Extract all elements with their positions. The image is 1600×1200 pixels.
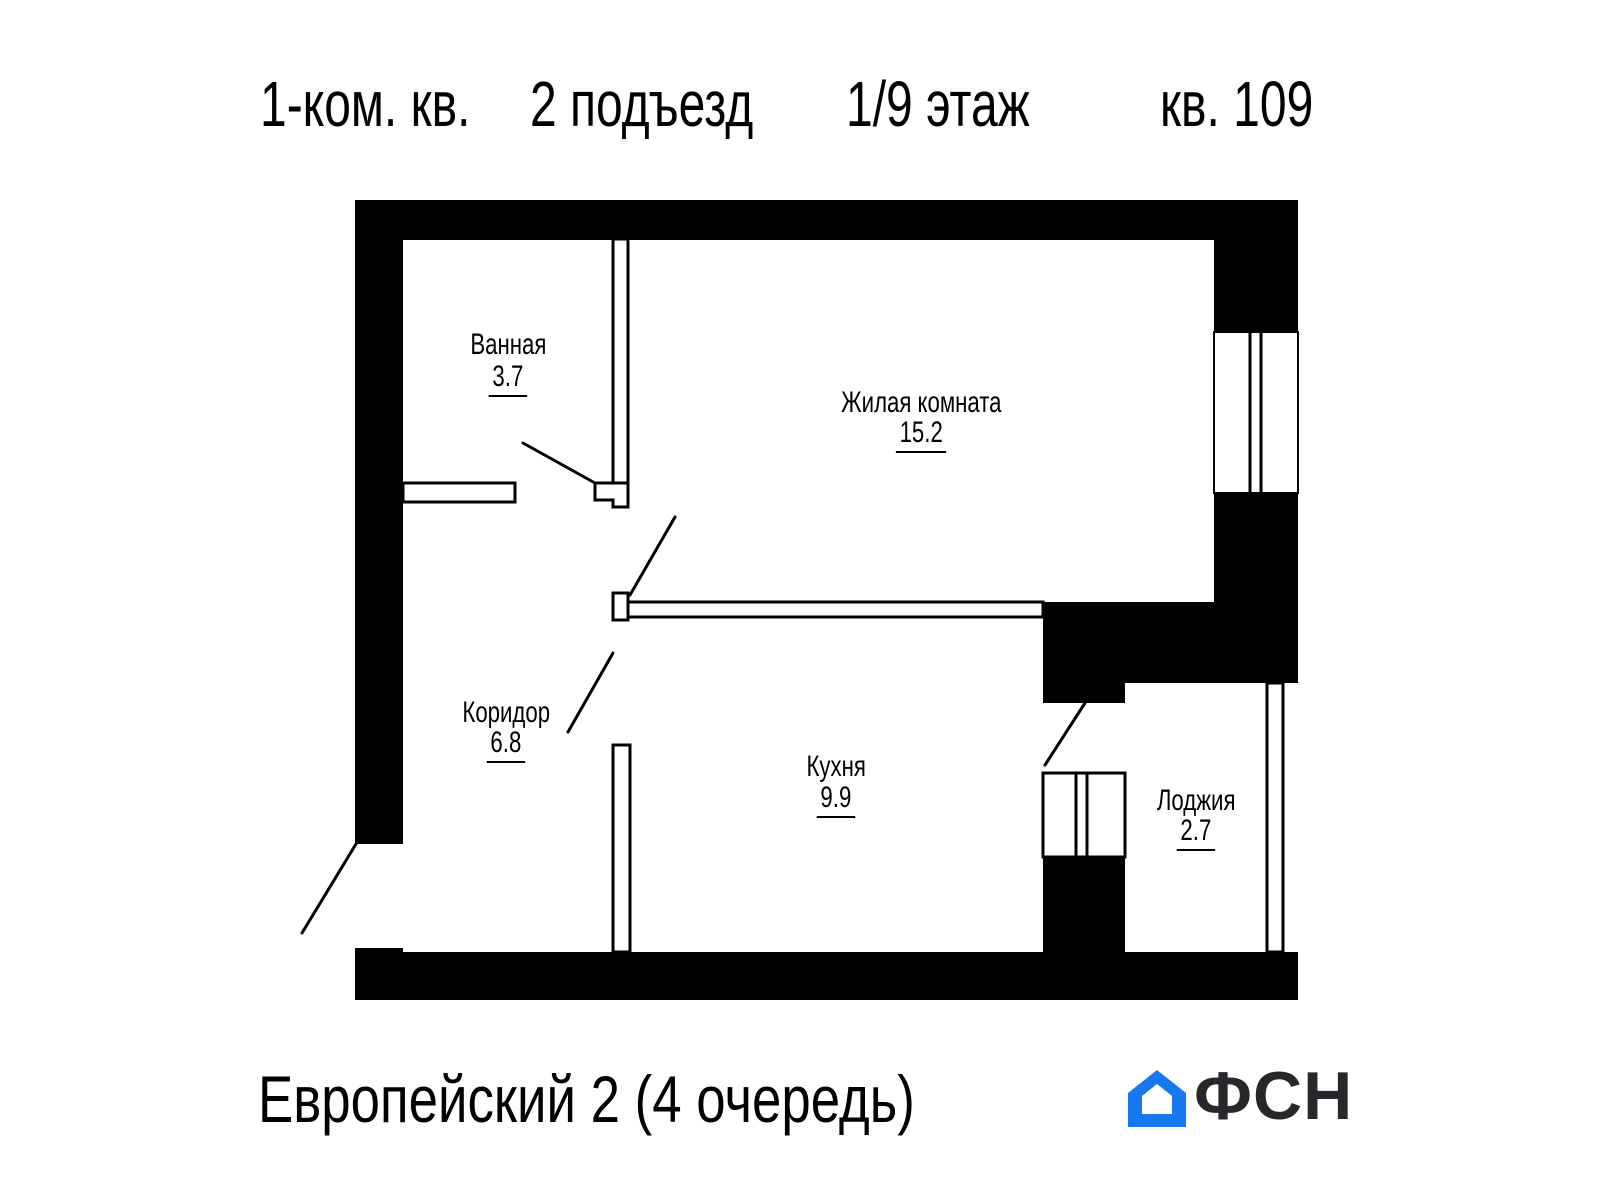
- wall-top: [355, 200, 1298, 240]
- title-apartment-type: 1-ком. кв.: [260, 72, 541, 136]
- partition-kitchen-top: [628, 602, 1043, 617]
- jamb-bathroom-door: [595, 483, 628, 507]
- room-area-loggia: 2.7: [1016, 816, 1376, 851]
- developer-logo: ФСН: [1128, 1070, 1353, 1128]
- room-label-kitchen: Кухня: [656, 752, 1016, 782]
- door-swing-bathroom: [523, 443, 595, 483]
- window-living-room: [1214, 332, 1298, 493]
- wall-kitchen-loggia-lower: [1043, 857, 1125, 952]
- wall-bottom: [403, 952, 1298, 1000]
- partition-bathroom-bottom: [403, 483, 515, 502]
- door-swing-balcony: [1045, 703, 1085, 765]
- title-floor: 1/9 этаж: [846, 72, 1091, 136]
- room-label-corridor: Коридор: [326, 698, 686, 728]
- wall-under-living-room: [1043, 602, 1298, 683]
- room-area-bathroom: 3.7: [328, 362, 688, 397]
- wall-left-bottom: [355, 948, 403, 1000]
- room-area-kitchen: 9.9: [656, 783, 1016, 818]
- door-swing-entrance: [302, 844, 356, 933]
- room-area-living-room: 15.2: [741, 418, 1101, 453]
- room-label-living-room: Жилая комната: [741, 388, 1101, 418]
- room-label-loggia: Лоджия: [1016, 786, 1376, 816]
- title-apartment-number: кв. 109: [1160, 72, 1364, 136]
- floor-plan: [0, 0, 1600, 1200]
- room-area-corridor: 6.8: [326, 728, 686, 763]
- project-name: Европейский 2 (4 очередь): [258, 1064, 1079, 1134]
- room-label-bathroom: Ванная: [328, 330, 688, 360]
- jamb-living-room-door: [613, 593, 628, 620]
- logo-text: ФСН: [1194, 1067, 1353, 1125]
- wall-loggia-top-step: [1043, 683, 1125, 703]
- door-swing-living-room: [630, 517, 675, 595]
- house-icon: [1128, 1070, 1186, 1128]
- title-entrance: 2 подъезд: [530, 72, 828, 136]
- partition-corridor-kitchen: [613, 745, 630, 952]
- wall-right-upper: [1214, 240, 1298, 332]
